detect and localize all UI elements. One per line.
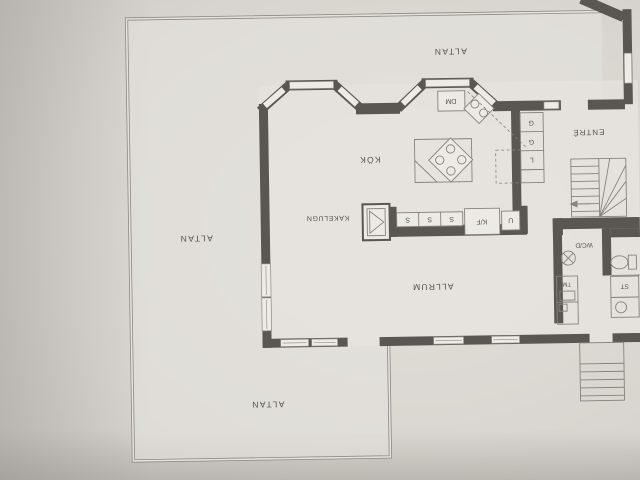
label-g2: G — [529, 138, 535, 145]
kakelugn-icon — [362, 204, 390, 240]
label-entre: ENTRÉ — [572, 127, 604, 137]
label-allrum: ALLRUM — [412, 282, 454, 293]
label-kakelugn: KAKELUGN — [306, 214, 349, 222]
label-s2: S — [427, 215, 432, 222]
label-g1: G — [528, 119, 534, 126]
label-s1: S — [405, 216, 410, 223]
label-altan-west: ALTAN — [179, 233, 213, 244]
floorplan-photo: ALTAN ALTAN ALTAN KÖK KAKELUGN ALLRUM EN… — [0, 0, 640, 480]
label-u: U — [508, 216, 513, 223]
label-altan-south: ALTAN — [251, 399, 285, 410]
floorplan-drawing: ALTAN ALTAN ALTAN KÖK KAKELUGN ALLRUM EN… — [0, 0, 640, 480]
label-st: ST — [621, 282, 629, 289]
label-kok: KÖK — [359, 155, 381, 165]
label-l: L — [530, 156, 534, 163]
label-wcd: WC/D — [575, 241, 593, 248]
label-s3: S — [449, 215, 454, 222]
label-dm: DM — [445, 97, 456, 104]
label-tm: TM — [562, 280, 571, 286]
label-altan-north: ALTAN — [433, 46, 467, 57]
label-kf: K/F — [476, 218, 487, 225]
